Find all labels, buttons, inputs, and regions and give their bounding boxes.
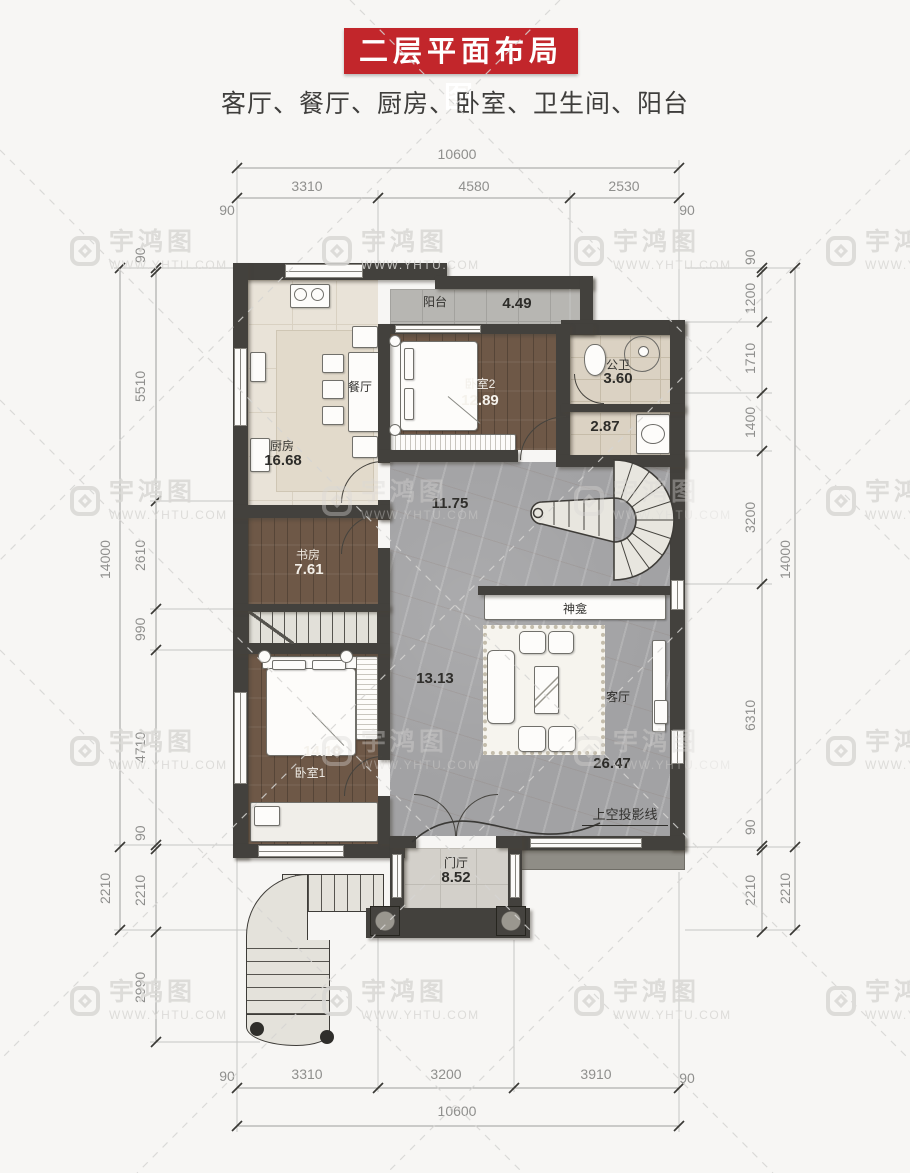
dining-chair [352, 436, 378, 458]
bedroom1-window [234, 692, 247, 784]
dim-left-990: 990 [132, 597, 148, 661]
foyer-area: 8.52 [432, 869, 480, 886]
sofa-single [519, 631, 546, 654]
dining-label: 餐厅 [340, 378, 380, 395]
bedroom1-area: 14.18 [292, 743, 352, 760]
dim-left-5510: 5510 [132, 346, 148, 426]
dining-chair [322, 406, 344, 425]
pillow [312, 660, 346, 670]
dim-left-90a: 90 [132, 240, 148, 270]
page-subtitle: 客厅、餐厅、厨房、卧室、卫生间、阳台 [0, 84, 910, 120]
sofa-single [548, 726, 576, 752]
bedroom1-label: 卧室1 [282, 764, 338, 781]
nightstand [258, 650, 271, 663]
dim-right-90b: 90 [742, 812, 758, 842]
bench [254, 806, 280, 826]
dim-top-seg1: 3310 [257, 178, 357, 194]
living-area: 26.47 [580, 755, 644, 772]
dim-left-2610: 2610 [132, 515, 148, 595]
living-label: 客厅 [598, 688, 638, 705]
sink-basin [311, 288, 324, 301]
bedroom2-label: 卧室2 [450, 375, 510, 392]
corridor-area: 13.13 [405, 670, 465, 687]
stair-newel-post [320, 1030, 334, 1044]
dim-bot-seg3: 3910 [546, 1066, 646, 1082]
bedroom1-south-window [258, 845, 344, 857]
hall-area: 11.75 [420, 495, 480, 512]
dim-top-total: 10600 [407, 146, 507, 162]
sofa-single [518, 726, 546, 752]
nightstand [389, 335, 401, 347]
dim-left-total: 14000 [97, 515, 113, 605]
wall-study-east [378, 548, 390, 656]
study-area: 7.61 [284, 561, 334, 578]
kitchen-area: 16.68 [258, 452, 308, 469]
sofa-single [548, 631, 574, 654]
dim-left-outer2210: 2210 [97, 853, 113, 923]
dim-right-3200: 3200 [742, 482, 758, 552]
porch-column [496, 906, 526, 936]
dim-left-90b: 90 [132, 818, 148, 848]
nightstand [389, 424, 401, 436]
wall-bath-divider [561, 404, 685, 412]
dim-bot-seg2: 3200 [396, 1066, 496, 1082]
kitchen-window [285, 264, 363, 278]
dim-bot-total: 10600 [407, 1103, 507, 1119]
dim-right-total: 14000 [777, 515, 793, 605]
dim-top-seg2: 4580 [424, 178, 524, 194]
sink-basin [294, 288, 307, 301]
pillow [272, 660, 306, 670]
bedroom2-window [395, 325, 481, 333]
wall-balcony-north [435, 276, 593, 289]
tv-cabinet-deco [654, 700, 668, 724]
dim-right-2210: 2210 [742, 855, 758, 925]
dim-right-1200: 1200 [742, 267, 758, 329]
dim-bot-seg1: 3310 [257, 1066, 357, 1082]
page-title: 二层平面布局图 [344, 28, 578, 74]
dim-right-1710: 1710 [742, 326, 758, 390]
dim-left-2210: 2210 [132, 855, 148, 925]
foyer-west-window [392, 854, 402, 898]
washroom-area: 2.87 [580, 418, 630, 435]
coffee-table [534, 666, 559, 714]
stair-newel-post [250, 1022, 264, 1036]
dim-right-outer2210: 2210 [777, 853, 793, 923]
dim-bot-90l: 90 [212, 1068, 242, 1084]
dim-right-1400: 1400 [742, 390, 758, 454]
dining-chair [352, 326, 378, 348]
wall-stair-bedroom1 [233, 644, 390, 654]
nightstand [340, 650, 353, 663]
bedroom2-wardrobe [390, 434, 516, 451]
stair-break-line [248, 611, 294, 644]
balcony-area: 4.49 [492, 295, 542, 312]
dim-top-90r: 90 [672, 202, 702, 218]
dim-left-2990: 2990 [132, 952, 148, 1022]
basin [641, 424, 665, 444]
dim-top-90l: 90 [212, 202, 242, 218]
shrine-label: 神龛 [484, 600, 666, 617]
void-projection-label: 上空投影线 [582, 804, 668, 826]
wall-bedroom2-south [378, 450, 518, 462]
dim-left-4710: 4710 [132, 707, 148, 787]
floor-plan-page: 二层平面布局图 客厅、餐厅、厨房、卧室、卫生间、阳台 [0, 0, 910, 1173]
bedroom2-area: 12.89 [450, 392, 510, 409]
kitchen-cabinet [250, 352, 266, 382]
dim-top-seg3: 2530 [574, 178, 674, 194]
spiral-stair [502, 458, 677, 608]
pillow [404, 388, 414, 420]
dim-bot-90r: 90 [672, 1070, 702, 1086]
dim-right-6310: 6310 [742, 678, 758, 753]
pillow [404, 348, 414, 380]
dining-chair [322, 354, 344, 373]
dining-window [234, 348, 247, 426]
bathroom-area: 3.60 [596, 370, 640, 387]
foyer-east-window [510, 854, 520, 898]
wall-study-stair [233, 604, 390, 611]
wall-bedroom1-east-a [378, 654, 390, 760]
balcony-label: 阳台 [415, 293, 455, 310]
sofa-main [487, 650, 515, 724]
bedroom1-wardrobe [356, 656, 378, 740]
porch-column [370, 906, 400, 936]
wall-bedroom1-east-b [378, 796, 390, 844]
